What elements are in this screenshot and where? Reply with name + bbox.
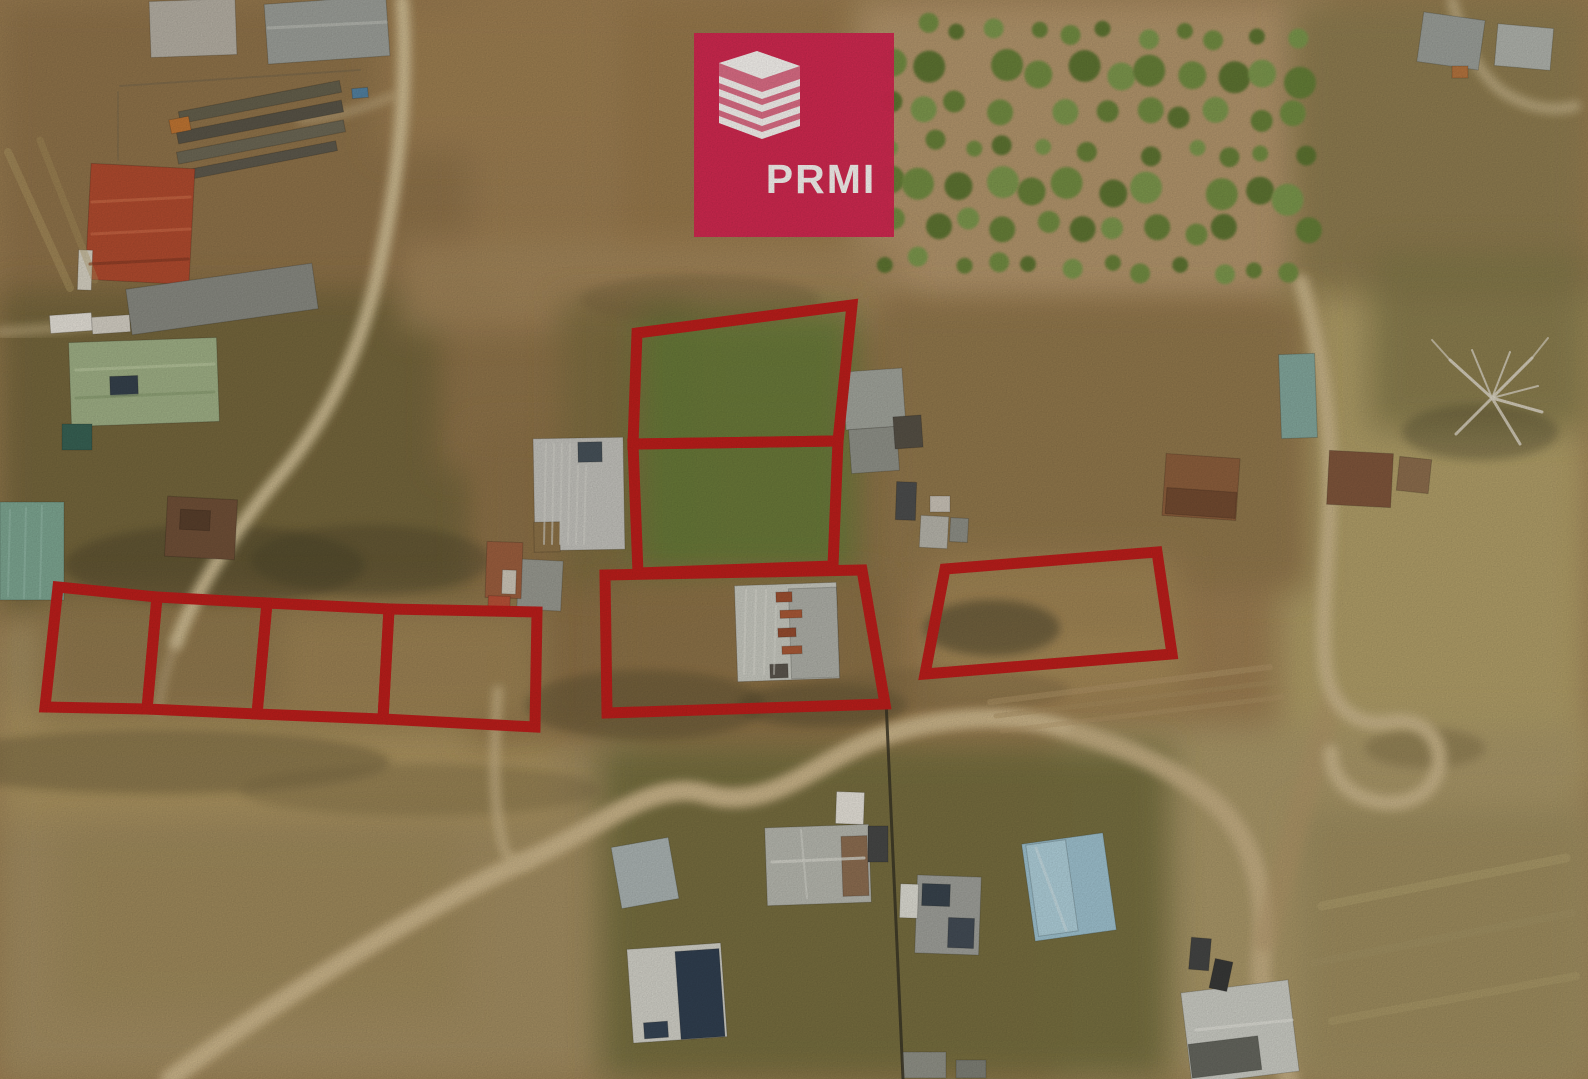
aerial-photo-stage: PRMI [0,0,1588,1079]
photo-grain [0,0,1588,1079]
aerial-photo: PRMI [0,0,1588,1079]
